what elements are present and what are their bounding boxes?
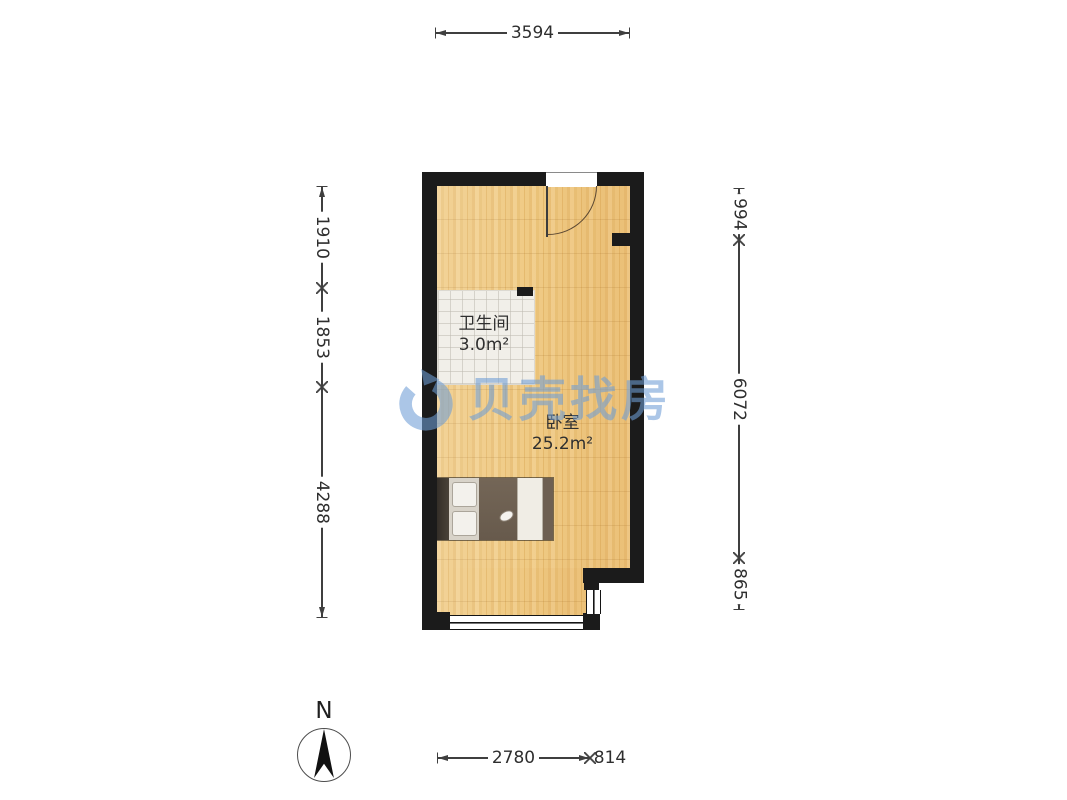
dimension-tick [629,28,630,39]
dimension-bottom-segment-2: 814 [590,751,630,765]
dimension-top: 3594 [435,26,630,40]
dimension-left-segment-1: 1910 [315,186,329,288]
dimension-label: 1910 [313,211,332,262]
bed [437,478,553,540]
beike-shell-logo-icon [394,368,458,432]
dimension-tick [317,617,328,618]
dimension-label: 865 [730,564,749,604]
wall-step-bottom-right [583,568,644,583]
room-area: 3.0m² [438,335,530,356]
dimension-label: 2780 [488,749,539,768]
dimension-bottom-segment-1: 2780 [437,751,590,765]
wall-block-bottom-right [583,613,600,630]
window-bottom [450,615,583,630]
dimension-label: 6072 [730,373,749,424]
dimension-junction-icon [584,752,596,764]
dimension-label: 3594 [507,24,558,43]
dimension-right-segment-3: 865 [732,558,746,610]
wall-stub-bathroom [517,287,533,296]
bedroom-floor-lower [437,568,586,615]
wall-block-right-window [584,583,599,590]
arrow-left-icon [436,30,446,36]
dimension-tick [734,609,745,610]
dimension-left-segment-2: 1853 [315,288,329,387]
watermark: 贝壳找房 [394,368,672,432]
dimension-junction-icon [316,282,328,294]
bed-sheet [517,478,543,540]
dimension-label: 1853 [313,312,332,363]
bed-headboard [437,478,449,540]
dimension-label: 994 [730,194,749,234]
bed-pillow [452,511,477,536]
dimension-junction-icon [316,381,328,393]
wall-top-left [422,172,546,186]
arrow-down-icon [319,607,325,617]
dimension-right-segment-2: 6072 [732,240,746,558]
compass-north-label: N [304,698,344,724]
floorplan-canvas: 3594 2780 814 1910 1853 4288 [0,0,1067,800]
door-opening [546,172,597,187]
dimension-right-segment-1: 994 [732,188,746,240]
wall-block-bottom-left [422,612,450,630]
arrow-up-icon [319,187,325,197]
dimension-junction-icon [733,552,745,564]
room-area: 25.2m² [515,434,610,455]
room-name: 卫生间 [438,314,530,335]
arrow-right-icon [619,30,629,36]
wall-pier-right [612,233,630,246]
arrow-left-icon [438,755,448,761]
dimension-junction-icon [733,234,745,246]
dimension-left-segment-3: 4288 [315,387,329,618]
watermark-text: 贝壳找房 [468,377,672,424]
window-right [586,590,601,614]
room-label-bathroom: 卫生间 3.0m² [438,314,530,356]
bed-duvet [479,478,517,540]
dimension-label: 4288 [313,477,332,528]
bed-pillow [452,482,477,507]
